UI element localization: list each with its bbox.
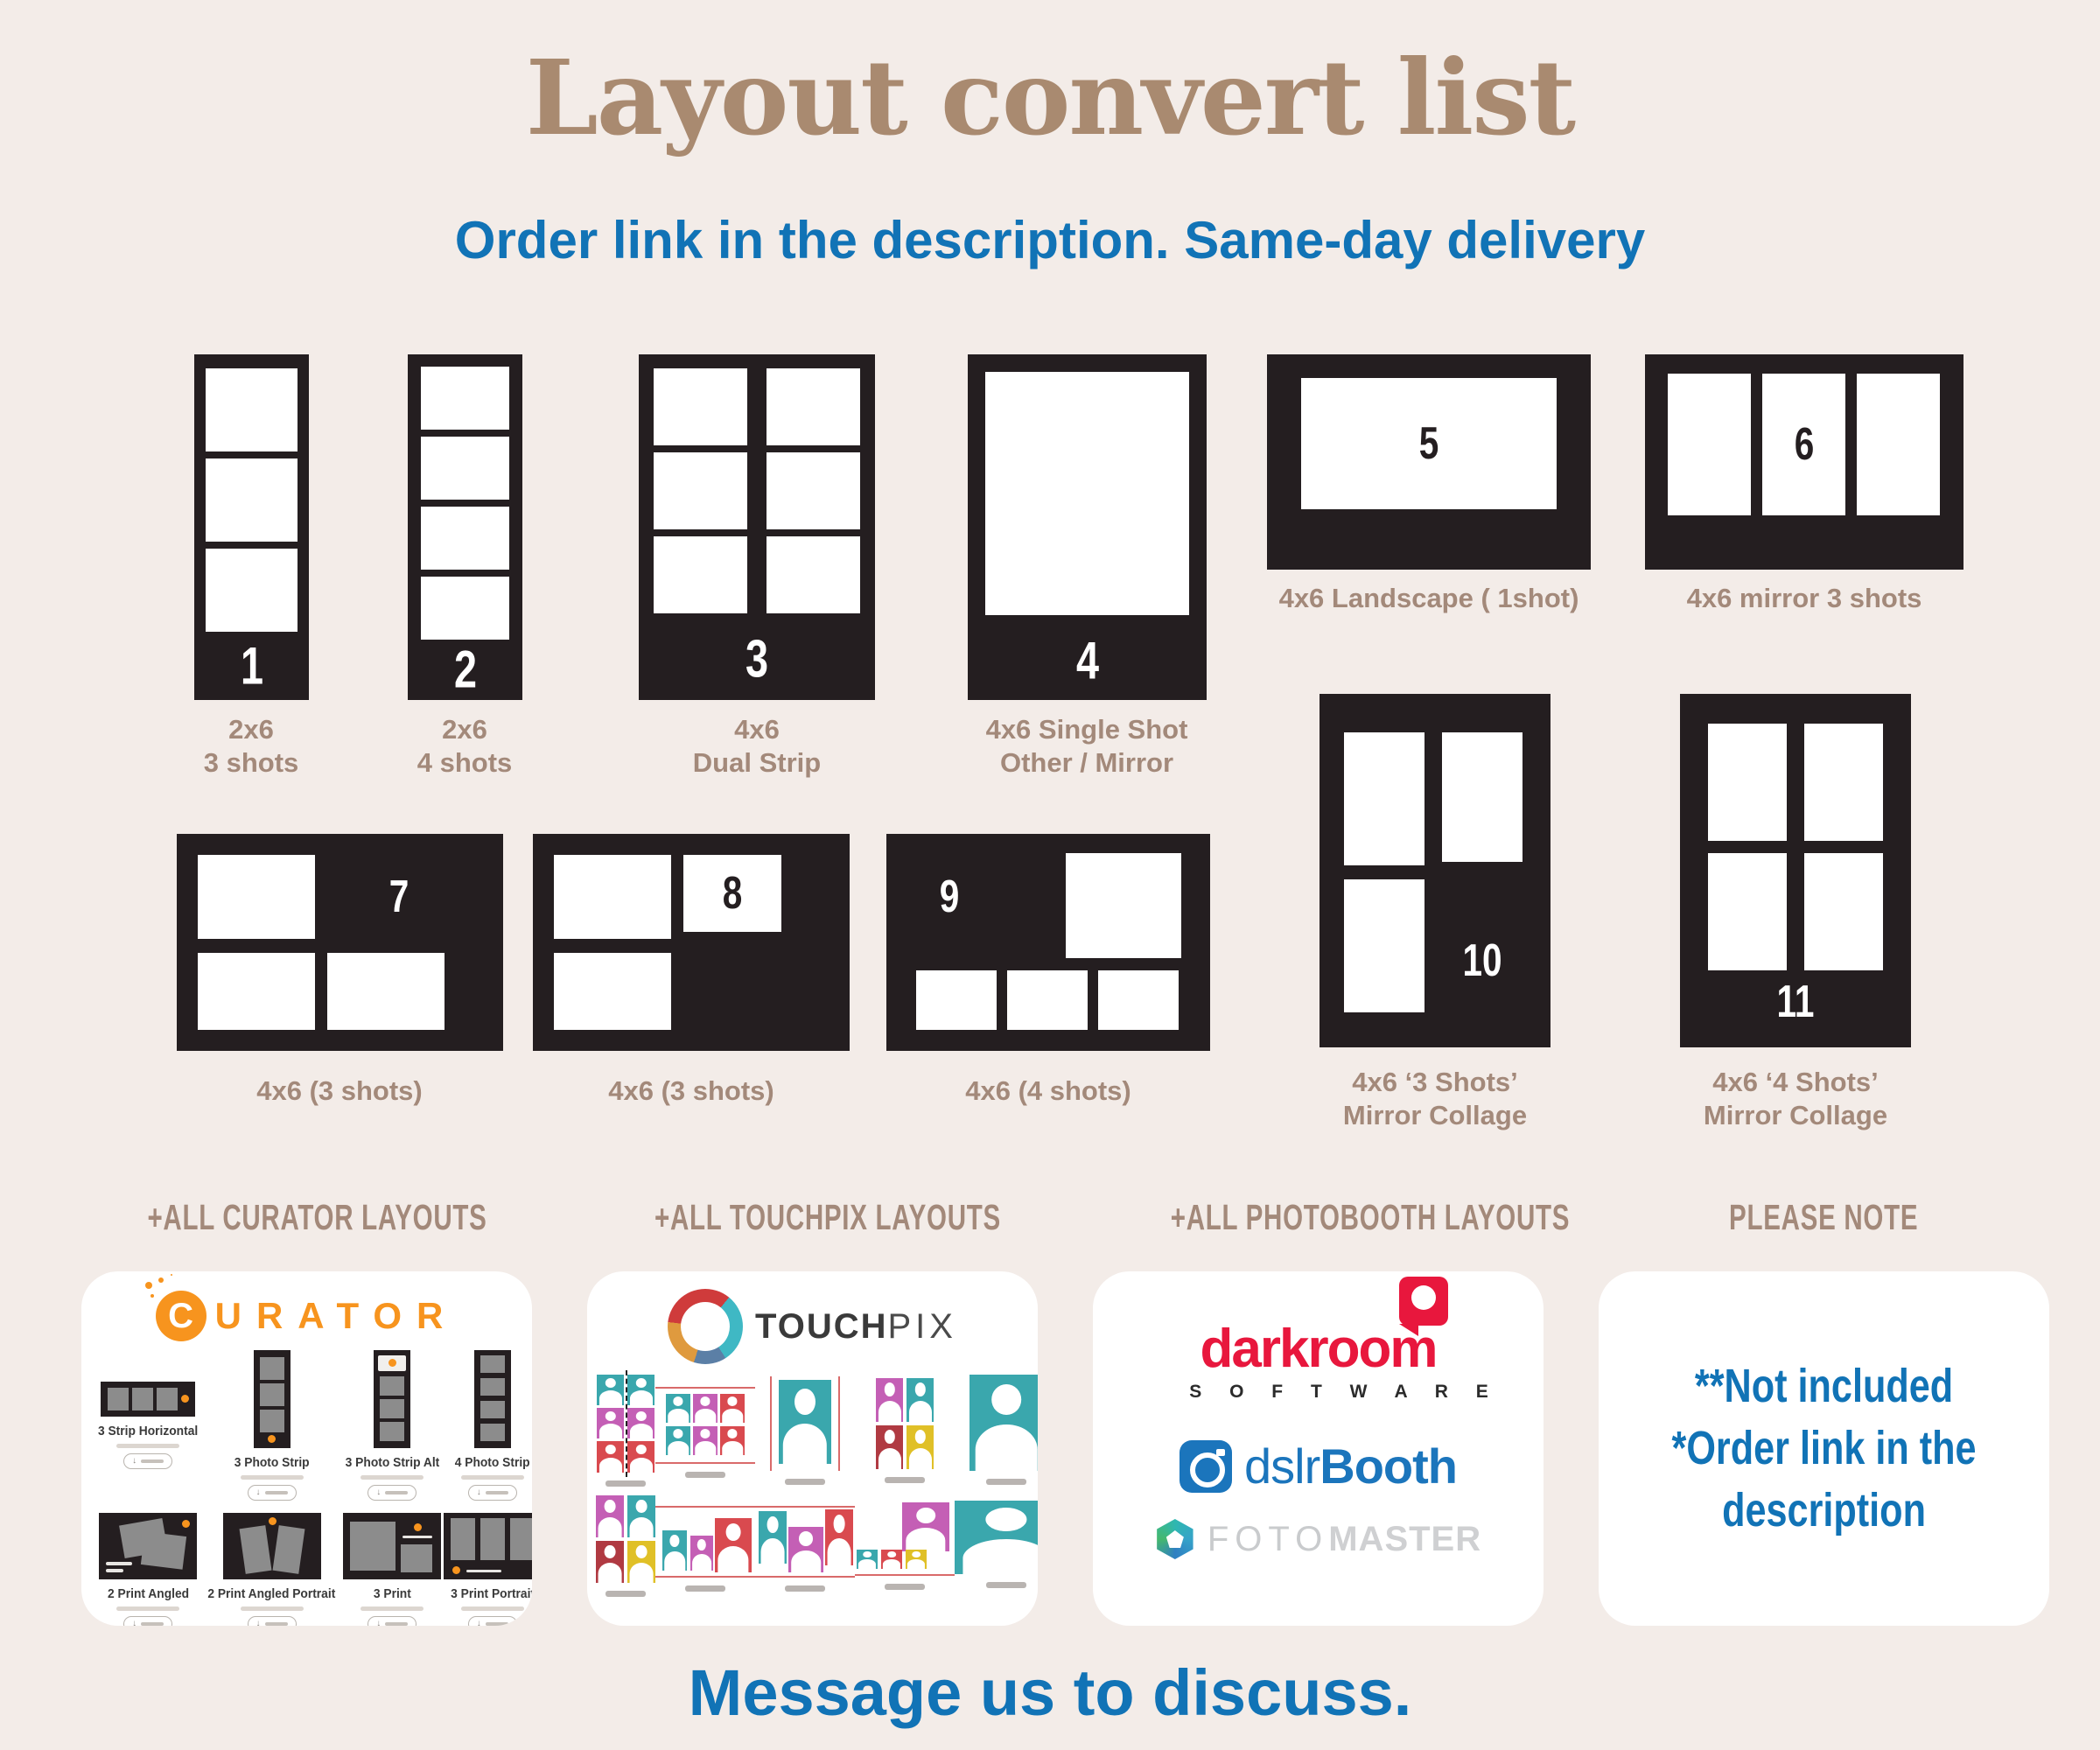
curator-layout-item: 3 Photo Strip ↓ [202, 1350, 341, 1501]
touchpix-layout-item [855, 1495, 955, 1597]
layout-card-3: 3 [639, 354, 875, 700]
layout-number-8: 8 [723, 867, 743, 920]
layout-thumbnail [474, 1350, 511, 1448]
layout-thumbnail [597, 1375, 654, 1473]
photo-slot [1668, 374, 1751, 515]
dslrbooth-logo: dslrBooth [1179, 1438, 1457, 1494]
fotomaster-logo: FOTOMASTER [1155, 1519, 1481, 1559]
download-icon: ↓ [477, 1488, 481, 1497]
touchpix-logo: TOUCHPIX [587, 1289, 1038, 1364]
dslrbooth-camera-icon [1179, 1440, 1232, 1493]
download-icon: ↓ [256, 1488, 261, 1497]
page-title: Layout convert list [0, 37, 2100, 158]
layout-card-6: 6 [1645, 354, 1963, 570]
layout-label-2: 2x6 4 shots [333, 713, 596, 780]
section-heading-photobooth: +ALL PHOTOBOOTH LAYOUTS [1093, 1197, 1543, 1238]
photo-slot [421, 577, 509, 640]
dimension-text-placeholder [360, 1475, 423, 1480]
layout-label-10: 4x6 ‘3 Shots’ Mirror Collage [1304, 1066, 1566, 1132]
caption-text-placeholder [785, 1479, 825, 1485]
download-button: ↓ [468, 1485, 517, 1501]
touchpix-layout-item [655, 1495, 755, 1597]
darkroom-bubble-icon [1399, 1277, 1448, 1326]
layout-card-1: 1 [194, 354, 309, 700]
curator-wordmark: URATOR [215, 1295, 458, 1337]
photo-slot [985, 372, 1189, 615]
caption-text-placeholder [685, 1472, 725, 1478]
layout-label-8: 4x6 (3 shots) [560, 1074, 822, 1108]
photo-slot [1098, 970, 1179, 1030]
photo-slot [1007, 970, 1088, 1030]
curator-logo-icon: C [156, 1291, 206, 1341]
photo-slot [1708, 724, 1787, 841]
layout-thumbnail [254, 1350, 290, 1448]
download-icon: ↓ [376, 1620, 381, 1626]
curator-layout-item: 2 Print Angled ↓ [94, 1513, 202, 1626]
download-icon: ↓ [132, 1620, 136, 1626]
caption-text-placeholder [685, 1585, 725, 1592]
layout-thumbnail [955, 1501, 1038, 1574]
download-button: ↓ [248, 1485, 297, 1501]
curator-layout-item: 3 Strip Horizontal ↓ [94, 1350, 202, 1501]
dimension-text-placeholder [461, 1606, 524, 1611]
photo-slot [654, 536, 747, 613]
photo-slot [198, 953, 315, 1030]
curator-mini-logo-icon [182, 1520, 190, 1528]
photo-slot [554, 953, 671, 1030]
layout-thumbnail [855, 1502, 955, 1576]
dimension-text-placeholder [241, 1606, 304, 1611]
photo-slot [916, 970, 997, 1030]
curator-mini-logo-icon [269, 1517, 276, 1525]
photo-slot [421, 367, 509, 430]
photo-slot [1708, 853, 1787, 970]
layout-card-4: 4 [968, 354, 1207, 700]
layout-thumbnail [343, 1513, 441, 1579]
photo-slot [421, 437, 509, 500]
touchpix-layout-item [596, 1495, 655, 1597]
photo-slot [1804, 853, 1883, 970]
curator-mini-logo-icon [414, 1523, 422, 1531]
layout-label-11: 4x6 ‘4 Shots’ Mirror Collage [1664, 1066, 1927, 1132]
touchpix-panel: TOUCHPIX [587, 1271, 1038, 1626]
photobooth-panel: darkroom S O F T W A R E dslrBooth FOTOM… [1093, 1271, 1543, 1626]
photo-slot [1442, 732, 1522, 862]
layout-thumbnail [969, 1375, 1038, 1471]
layout-thumbnail [755, 1506, 855, 1578]
touchpix-layout-item [855, 1375, 955, 1487]
layout-label-3: 4x6 Dual Strip [626, 713, 888, 780]
layout-number-9: 9 [940, 871, 960, 923]
section-heading-touchpix: +ALL TOUCHPIX LAYOUTS [587, 1197, 1038, 1238]
layout-thumbnail [876, 1378, 934, 1469]
photo-slot [766, 368, 860, 445]
layout-number-7: 7 [389, 871, 409, 923]
section-heading-curator: +ALL CURATOR LAYOUTS [81, 1197, 532, 1238]
layout-number-6: 6 [1795, 418, 1815, 471]
footer-message: Message us to discuss. [0, 1655, 2100, 1730]
layout-number-2: 2 [453, 640, 476, 700]
layout-number-1: 1 [240, 636, 262, 696]
layout-card-2: 2 [408, 354, 522, 700]
download-icon: ↓ [477, 1620, 481, 1626]
download-button: ↓ [468, 1616, 517, 1626]
layout-thumbnail [444, 1513, 532, 1579]
touchpix-ring-icon [668, 1289, 743, 1364]
dimension-text-placeholder [360, 1606, 423, 1611]
layout-card-11: 11 [1680, 694, 1911, 1047]
layout-thumbnail [655, 1387, 755, 1464]
darkroom-software-label: S O F T W A R E [1137, 1382, 1499, 1403]
photo-slot [206, 368, 297, 451]
curator-logo: C URATOR [81, 1291, 532, 1341]
layout-card-9: 9 [886, 834, 1210, 1051]
layout-label-4: 4x6 Single Shot Other / Mirror [929, 713, 1244, 780]
curator-mini-logo-icon [181, 1395, 189, 1403]
photo-slot [1344, 879, 1424, 1012]
dimension-text-placeholder [116, 1444, 179, 1448]
layout-label-5: 4x6 Landscape ( 1shot) [1271, 582, 1586, 615]
photo-slot [654, 368, 747, 445]
photo-slot [766, 536, 860, 613]
darkroom-logo: darkroom [1200, 1322, 1437, 1376]
touchpix-layout-item [955, 1495, 1038, 1597]
caption-text-placeholder [986, 1479, 1026, 1485]
touchpix-layout-item [755, 1495, 855, 1597]
note-panel: **Not included *Order link in the descri… [1599, 1271, 2049, 1626]
curator-layout-item: 3 Print Portrait ↓ [444, 1513, 532, 1626]
layout-number-10: 10 [1462, 934, 1501, 987]
layout-number-4: 4 [1075, 631, 1098, 691]
layout-thumbnail [101, 1382, 195, 1417]
caption-text-placeholder [605, 1591, 646, 1597]
photo-slot [1804, 724, 1883, 841]
photo-slot [766, 452, 860, 529]
download-button: ↓ [123, 1453, 172, 1469]
download-button: ↓ [367, 1616, 416, 1626]
layout-thumbnail [596, 1495, 655, 1583]
dimension-text-placeholder [241, 1475, 304, 1480]
layout-number-3: 3 [745, 629, 768, 689]
photo-slot [1344, 732, 1424, 865]
layout-number-5: 5 [1419, 417, 1439, 470]
caption-text-placeholder [885, 1584, 925, 1590]
dimension-text-placeholder [116, 1606, 179, 1611]
curator-layout-item: 4 Photo Strip ↓ [444, 1350, 532, 1501]
curator-mini-logo-icon [268, 1435, 276, 1443]
photo-slot [198, 855, 315, 939]
curator-layout-item: 3 Print ↓ [341, 1513, 444, 1626]
photo-slot [1857, 374, 1940, 515]
layout-thumbnail [99, 1513, 197, 1579]
layout-card-8: 8 [533, 834, 850, 1051]
photo-slot [206, 549, 297, 632]
layout-thumbnail [374, 1350, 410, 1448]
layout-label-9: 4x6 (4 shots) [917, 1074, 1179, 1108]
download-button: ↓ [367, 1485, 416, 1501]
photo-slot [1066, 853, 1181, 958]
flyer-page: Layout convert list Order link in the de… [0, 0, 2100, 1750]
curator-panel: C URATOR 3 Strip Horizontal ↓ [81, 1271, 532, 1626]
page-subtitle: Order link in the description. Same-day … [0, 210, 2100, 270]
caption-text-placeholder [785, 1585, 825, 1592]
layout-card-7: 7 [177, 834, 503, 1051]
touchpix-layout-item [955, 1375, 1038, 1487]
touchpix-layout-item [655, 1375, 755, 1487]
photo-slot [327, 953, 444, 1030]
curator-layout-item: 3 Photo Strip Alt ↓ [341, 1350, 444, 1501]
download-icon: ↓ [376, 1488, 381, 1497]
download-button: ↓ [248, 1616, 297, 1626]
layout-number-11: 11 [1777, 976, 1815, 1028]
dimension-text-placeholder [461, 1475, 524, 1480]
photo-slot [206, 458, 297, 542]
download-button: ↓ [123, 1616, 172, 1626]
layout-card-5: 5 [1267, 354, 1591, 570]
fotomaster-aperture-icon [1155, 1519, 1195, 1559]
layout-card-10: 10 [1319, 694, 1550, 1047]
section-heading-note: PLEASE NOTE [1599, 1197, 2049, 1238]
caption-text-placeholder [885, 1477, 925, 1483]
layout-thumbnail [223, 1513, 321, 1579]
note-text: **Not included *Order link in the descri… [1671, 1355, 1976, 1543]
touchpix-layout-item [596, 1375, 655, 1487]
layout-label-6: 4x6 mirror 3 shots [1647, 582, 1962, 615]
layout-thumbnail [770, 1376, 840, 1471]
curator-mini-logo-icon [452, 1566, 460, 1574]
download-icon: ↓ [132, 1457, 136, 1466]
photo-slot [421, 507, 509, 570]
layout-label-7: 4x6 (3 shots) [208, 1074, 471, 1108]
touchpix-layout-item [755, 1375, 855, 1487]
download-icon: ↓ [256, 1620, 261, 1626]
caption-text-placeholder [605, 1480, 646, 1487]
layout-thumbnail [655, 1506, 755, 1578]
photo-slot [654, 452, 747, 529]
photo-slot [554, 855, 671, 939]
curator-layout-item: 2 Print Angled Portrait ↓ [202, 1513, 341, 1626]
caption-text-placeholder [986, 1582, 1026, 1588]
